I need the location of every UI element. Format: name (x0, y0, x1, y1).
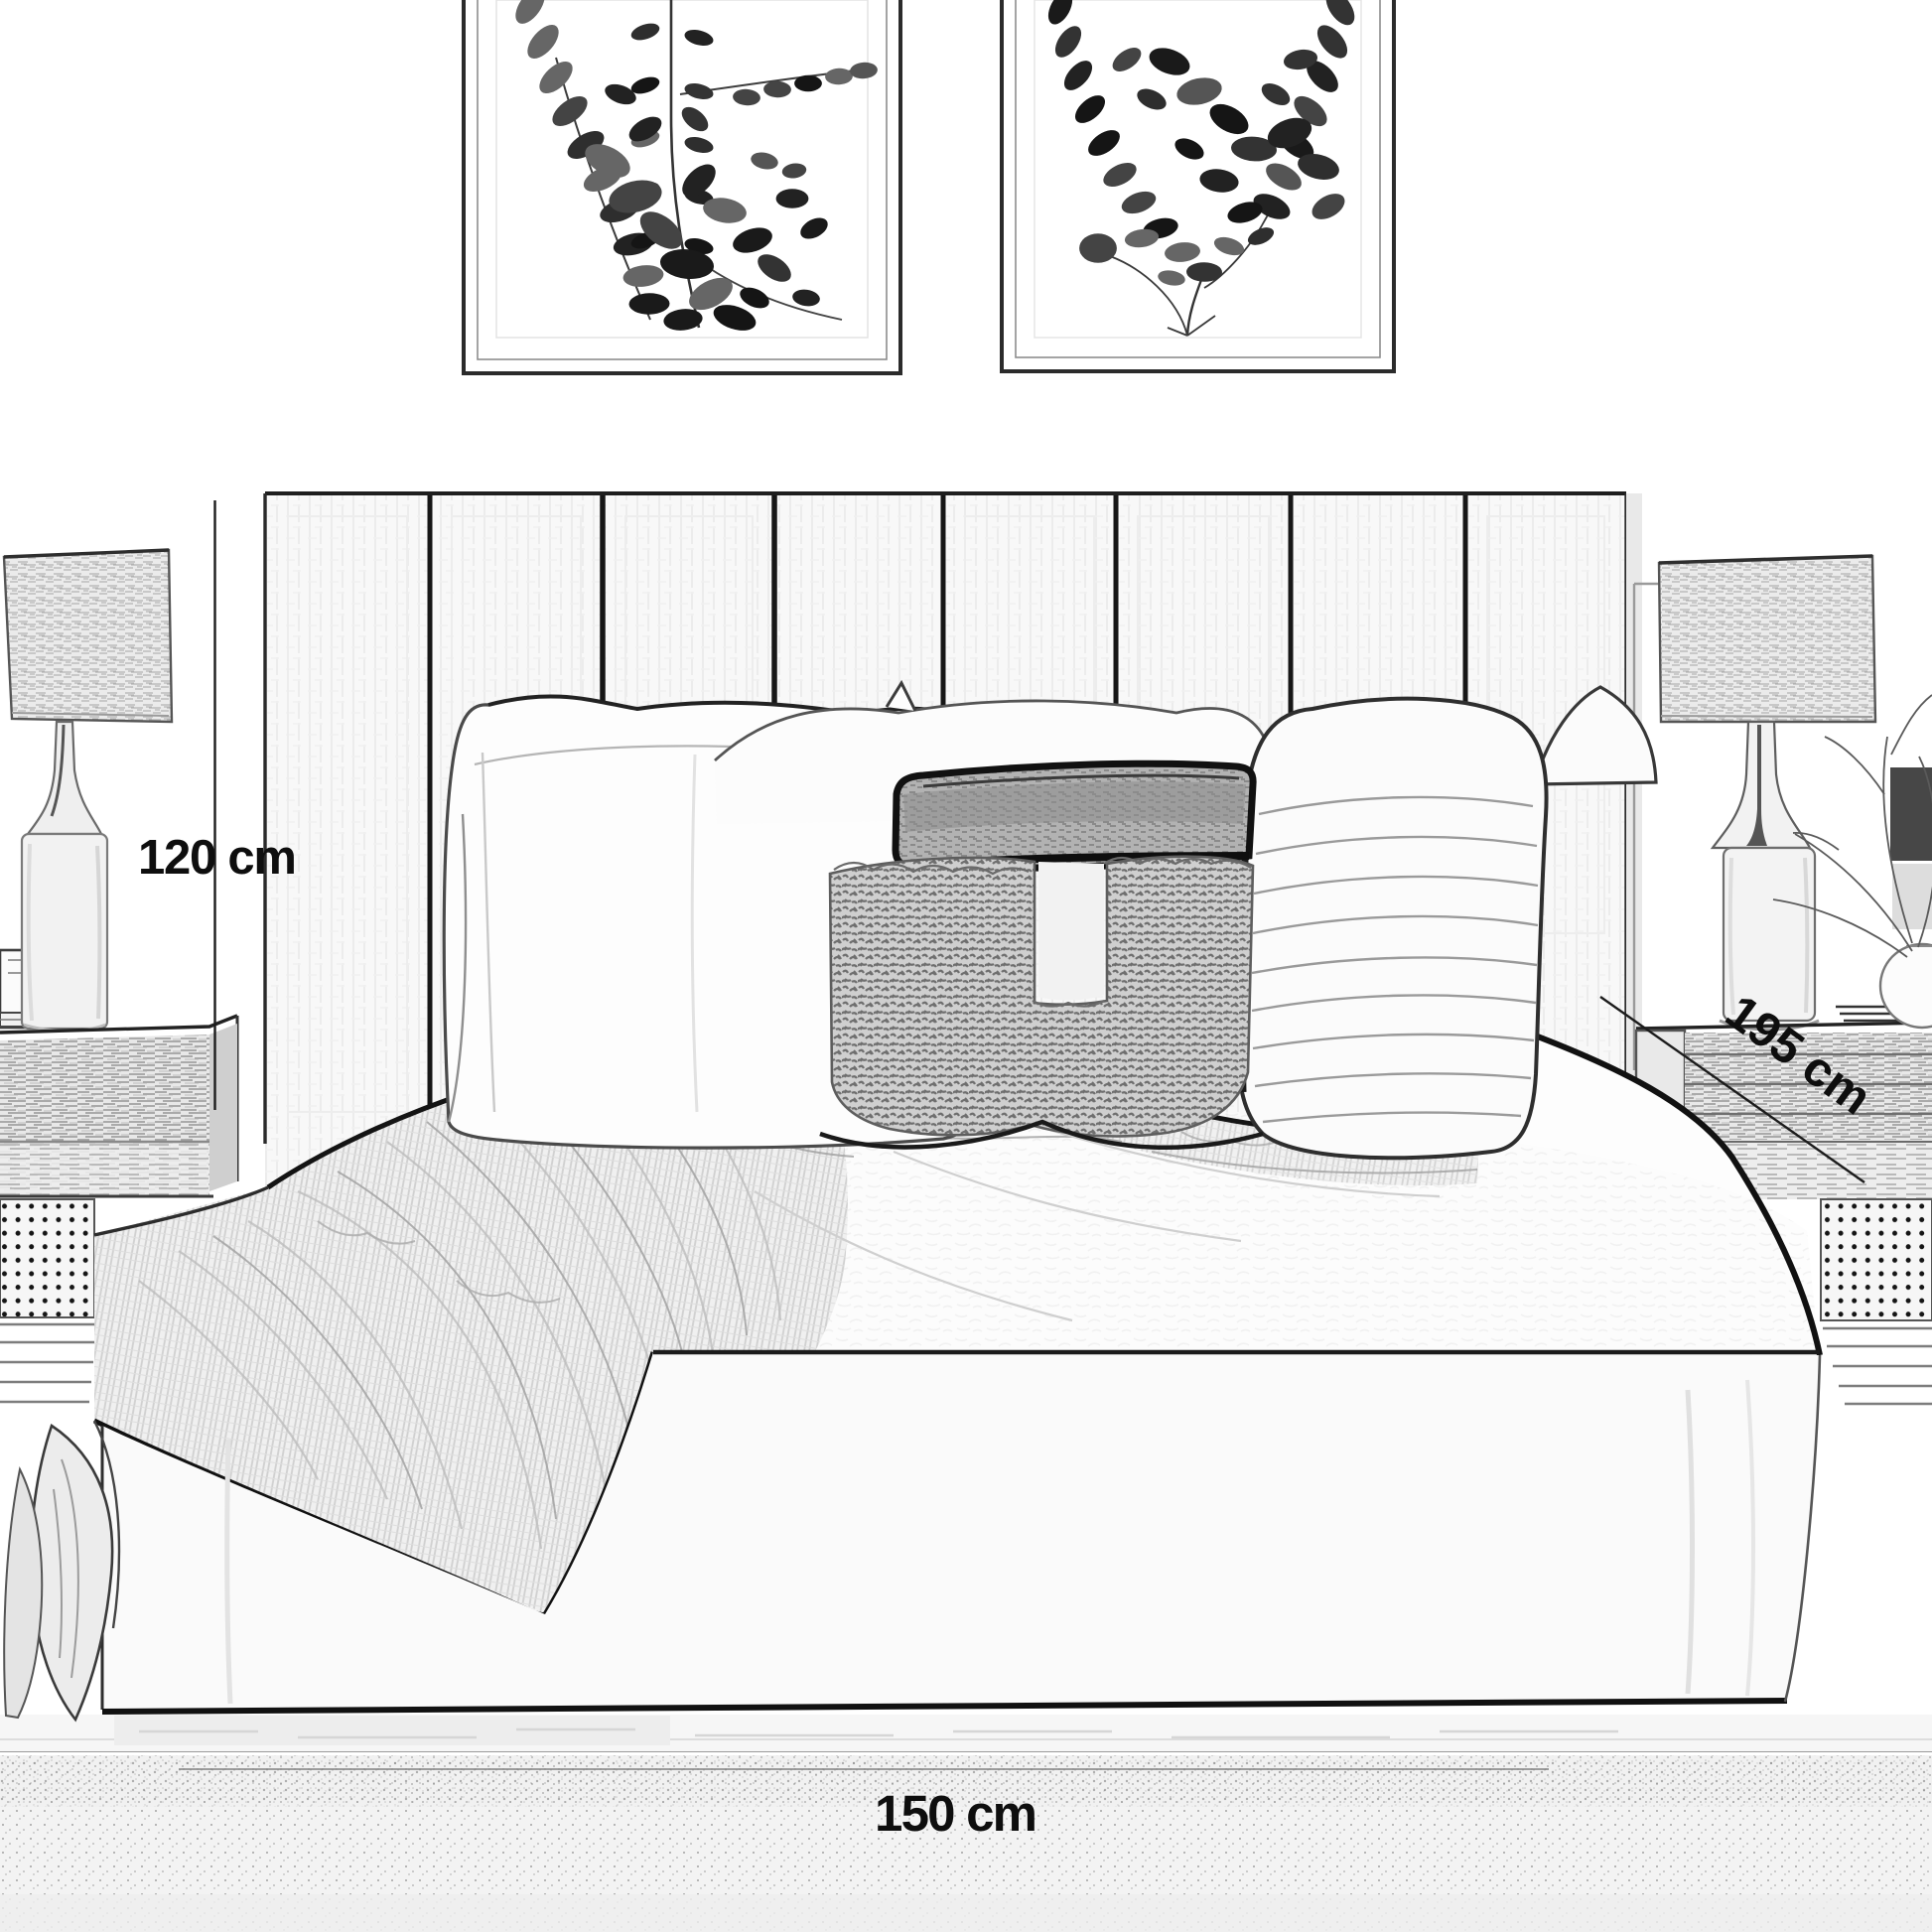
svg-text:120 cm: 120 cm (138, 831, 297, 885)
svg-text:150 cm: 150 cm (875, 1785, 1037, 1842)
